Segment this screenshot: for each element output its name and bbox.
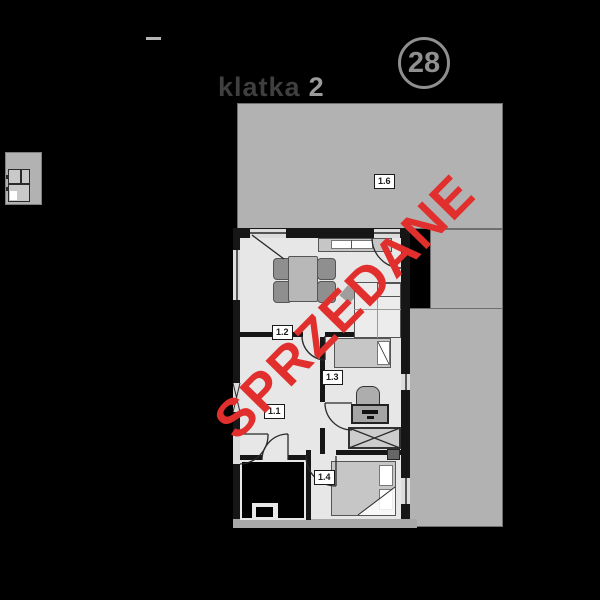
mini-partition bbox=[8, 183, 30, 185]
room-label-bedroom4: 1.4 bbox=[314, 470, 335, 485]
pillow-icon bbox=[377, 341, 390, 365]
sink-divider bbox=[351, 240, 352, 249]
room-label-text: 1.6 bbox=[378, 176, 391, 186]
unit-number: 28 bbox=[408, 47, 440, 80]
staircase-number: 2 bbox=[309, 72, 325, 102]
mini-window-tick bbox=[6, 187, 8, 191]
balcony-door-glazing bbox=[250, 232, 286, 234]
wall-hall-bedroom3-lower bbox=[320, 428, 325, 454]
window-right-lower-glazing bbox=[405, 478, 407, 504]
keyboard-icon bbox=[367, 416, 374, 419]
desk-icon bbox=[351, 404, 389, 424]
mini-window-tick bbox=[6, 175, 8, 179]
floor-plan-page: klatka2 28 bbox=[0, 0, 600, 600]
window-left-glazing bbox=[236, 250, 238, 300]
pillow-icon bbox=[379, 465, 393, 486]
top-dash-mark bbox=[146, 37, 161, 40]
wall-bottom bbox=[233, 519, 417, 528]
wall-blackroom-bedroom4 bbox=[306, 450, 311, 520]
window-right-upper-glazing bbox=[405, 374, 407, 390]
mini-room-detail bbox=[10, 191, 17, 200]
room-label-text: 1.3 bbox=[326, 372, 339, 382]
room-label-bedroom3: 1.3 bbox=[322, 370, 343, 385]
monitor-icon bbox=[362, 410, 378, 414]
shaft-icon bbox=[255, 506, 274, 518]
room-label-text: 1.4 bbox=[318, 472, 331, 482]
building-mass-lower-right bbox=[408, 308, 503, 527]
mini-floor-plan-thumbnail[interactable] bbox=[5, 152, 42, 205]
wardrobe-icon bbox=[348, 427, 401, 449]
balcony-door-opening bbox=[250, 229, 286, 238]
staircase-word: klatka bbox=[218, 72, 301, 102]
nightstand-icon bbox=[387, 449, 400, 460]
unit-number-badge: 28 bbox=[398, 37, 450, 89]
room-label-terrace: 1.6 bbox=[374, 174, 395, 189]
staircase-title: klatka2 bbox=[218, 72, 325, 103]
mini-partition bbox=[20, 169, 22, 184]
